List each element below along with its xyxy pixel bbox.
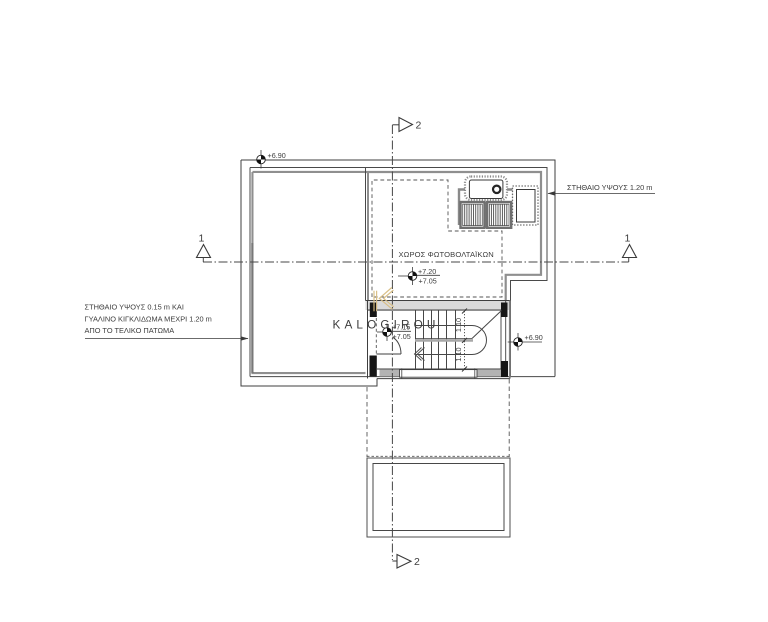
svg-text:1.10: 1.10	[454, 318, 463, 332]
svg-text:2: 2	[416, 120, 422, 132]
svg-text:1: 1	[199, 233, 205, 245]
svg-text:+7.20: +7.20	[418, 267, 436, 276]
svg-text:2: 2	[414, 556, 420, 568]
svg-text:ΣΤΗΘΑΙΟ ΥΨΟΥΣ 1.20 m: ΣΤΗΘΑΙΟ ΥΨΟΥΣ 1.20 m	[567, 183, 652, 192]
svg-text:ΣΤΗΘΑΙΟ ΥΨΟΥΣ 0.15 m ΚΑΙ: ΣΤΗΘΑΙΟ ΥΨΟΥΣ 0.15 m ΚΑΙ	[85, 303, 184, 312]
svg-text:1: 1	[625, 233, 631, 245]
svg-text:+7.05: +7.05	[419, 276, 437, 285]
svg-text:ΓΥΑΛΙΝΟ ΚΙΓΚΛΙΔΩΜΑ ΜΕΧΡΙ 1.20: ΓΥΑΛΙΝΟ ΚΙΓΚΛΙΔΩΜΑ ΜΕΧΡΙ 1.20 m	[85, 314, 212, 323]
svg-text:+7.05: +7.05	[393, 332, 411, 341]
svg-text:+6.90: +6.90	[268, 151, 286, 160]
svg-text:KALOGIROU: KALOGIROU	[333, 318, 440, 332]
svg-text:ΑΠΟ ΤΟ ΤΕΛΙΚΟ ΠΑΤΩΜΑ: ΑΠΟ ΤΟ ΤΕΛΙΚΟ ΠΑΤΩΜΑ	[85, 326, 175, 335]
svg-text:+6.90: +6.90	[525, 333, 543, 342]
svg-text:1.10: 1.10	[454, 347, 463, 361]
svg-text:ΧΩΡΟΣ ΦΩΤΟΒΟΛΤΑΪΚΩΝ: ΧΩΡΟΣ ΦΩΤΟΒΟΛΤΑΪΚΩΝ	[399, 250, 494, 259]
